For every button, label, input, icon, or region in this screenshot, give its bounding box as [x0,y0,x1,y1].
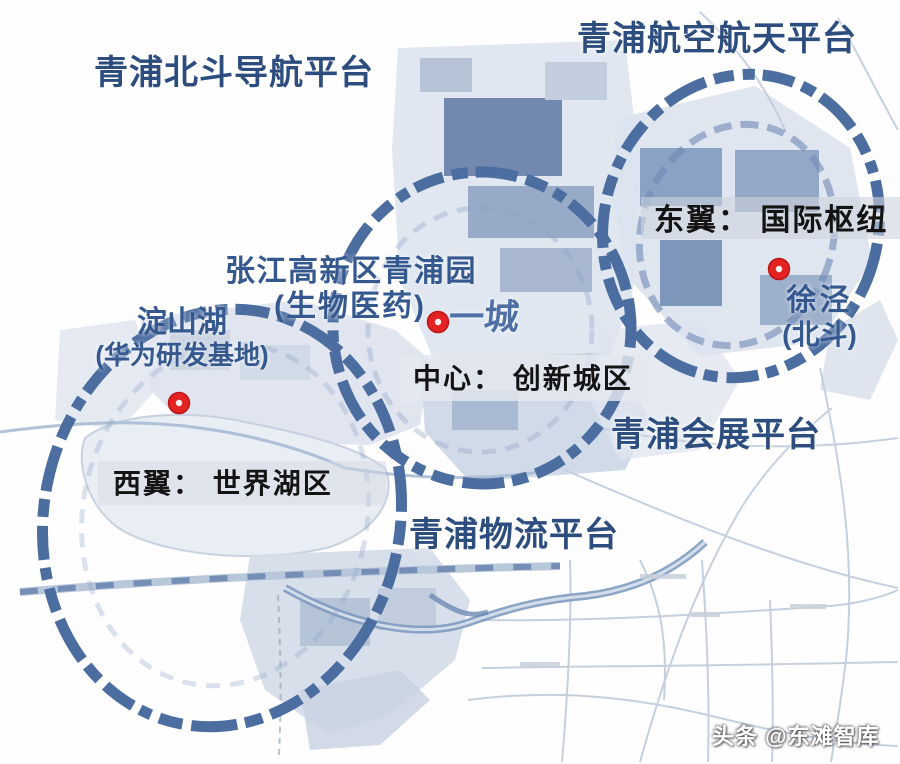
label-zhangjiang-line1: 张江高新区青浦园 [225,254,475,289]
watermark: 头条 @东滩智库 [712,719,880,751]
xujing-marker [769,259,790,280]
label-dianshanhu-line2: (华为研发基地) [84,340,280,371]
dianshanhu-marker [169,393,190,414]
label-aerospace-platform: 青浦航空航天平台 [577,19,857,59]
label-beidou-platform: 青浦北斗导航平台 [94,53,374,93]
label-west-wing: 西翼： 世界湖区 [113,467,333,500]
label-exhibition-platform: 青浦会展平台 [611,415,821,455]
label-xujing-line2: (北斗) [752,318,887,351]
qingpu-planning-map: 青浦北斗导航平台 青浦航空航天平台 青浦会展平台 青浦物流平台 东翼： 国际枢纽… [0,0,900,764]
label-dianshanhu: 淀山湖 (华为研发基地) [84,305,280,371]
label-logistics-platform: 青浦物流平台 [409,515,619,555]
label-center-zone: 中心： 创新城区 [413,362,633,395]
label-xujing-line1: 徐泾 [752,283,887,318]
label-xujing: 徐泾 (北斗) [752,283,887,351]
label-east-wing: 东翼： 国际枢纽 [654,203,888,238]
label-yicheng: 一城 [447,297,521,338]
label-dianshanhu-line1: 淀山湖 [84,305,280,340]
